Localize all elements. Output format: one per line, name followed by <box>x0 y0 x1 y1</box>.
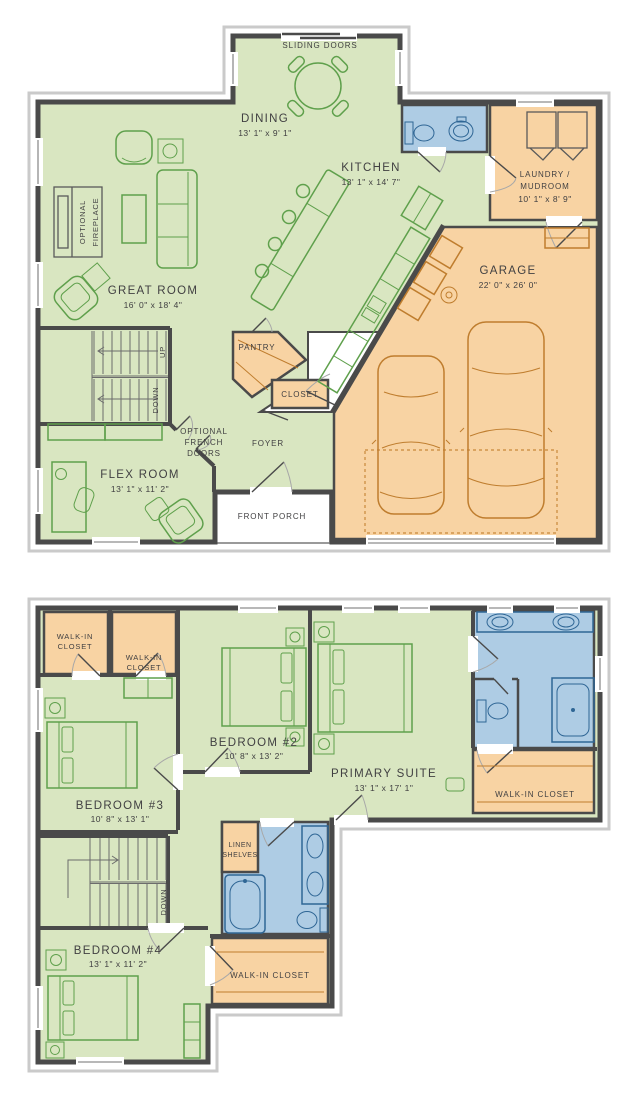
primary-bath-door-gap <box>468 636 478 672</box>
room-dims-kitchen: 13' 1" x 14' 7" <box>342 177 401 187</box>
primary-wic-door-gap <box>477 744 513 754</box>
wic-b-label-1: WALK-IN <box>126 653 163 662</box>
window <box>395 50 405 86</box>
wic-a-label-1: WALK-IN <box>57 632 94 641</box>
primary-wic-label: WALK-IN CLOSET <box>495 790 575 799</box>
hall-wic-label: WALK-IN CLO­SET <box>230 971 310 980</box>
hall-bath-door-gap <box>260 818 294 827</box>
room-dims-flex: 13' 1" x 11' 2" <box>111 484 169 494</box>
room-dims-bedroom3: 10' 8" x 13' 1" <box>91 814 150 824</box>
first-floor-plan: SLIDING DOORS DINING 13' 1" x 9' 1" KITC… <box>29 27 609 551</box>
room-label-bedroom4: BEDROOM #4 <box>74 945 162 957</box>
window <box>487 603 513 613</box>
floor-plan-canvas: SLIDING DOORS DINING 13' 1" x 9' 1" KITC… <box>0 0 639 1111</box>
room-label-primary: PRIMARY SUITE <box>331 768 437 780</box>
window <box>516 97 554 107</box>
up-label: UP <box>158 346 167 358</box>
laundry-garage-door-gap <box>546 216 582 226</box>
window <box>33 262 43 308</box>
primary-walk-in-closet <box>473 750 594 813</box>
room-label-bedroom2: BEDROOM #2 <box>210 737 298 749</box>
room-dims-dining: 13' 1" x 9' 1" <box>238 128 292 138</box>
linen-label-2: SHELVES <box>222 852 257 859</box>
window <box>33 688 43 732</box>
room-label-garage: GARAGE <box>479 265 536 277</box>
second-floor-plan: WALK-IN CLOSET WALK-IN CLOSET BEDROOM #2… <box>29 599 609 1071</box>
foyer-label: FOYER <box>252 439 284 448</box>
window <box>595 656 605 692</box>
garage-door-opening <box>366 535 556 546</box>
room-dims-primary: 13' 1" x 17' 1" <box>355 783 414 793</box>
wic-a-label-2: CLOSET <box>58 642 93 651</box>
room-dims-great-room: 16' 0" x 18' 4" <box>124 300 183 310</box>
room-dims-bedroom2: 10' 8" x 13' 2" <box>225 751 284 761</box>
window <box>33 138 43 186</box>
window <box>398 603 430 613</box>
window <box>238 603 278 613</box>
window <box>33 986 43 1030</box>
hall-wic-door-gap <box>205 946 215 986</box>
french-doors-label-1: OPTIONAL <box>180 427 228 436</box>
window <box>554 603 580 613</box>
room-dims-bedroom4: 13' 1" x 11' 2" <box>89 959 147 969</box>
down-label-floor2: DOWN <box>159 889 168 916</box>
sliding-doors-label: SLIDING DOORS <box>282 41 357 50</box>
room-label-flex: FLEX ROOM <box>100 469 179 481</box>
window <box>33 468 43 514</box>
room-label-kitchen: KITCHEN <box>341 162 401 174</box>
bedroom3-door-gap <box>173 754 183 790</box>
bedroom2-door-gap <box>205 767 240 777</box>
window <box>76 1057 124 1067</box>
floor-plan-page: SLIDING DOORS DINING 13' 1" x 9' 1" KITC… <box>0 0 639 1111</box>
window <box>228 52 238 86</box>
room-dims-garage: 22' 0" x 26' 0" <box>479 280 538 290</box>
room-label-bedroom3: BEDROOM #3 <box>76 800 164 812</box>
bedroom4-door-gap <box>148 923 184 933</box>
powder-door-gap <box>418 147 446 156</box>
room-label-laundry-2: MUDROOM <box>520 182 569 191</box>
down-label: DOWN <box>151 387 160 414</box>
laundry-door-gap <box>485 156 495 194</box>
window <box>92 537 140 547</box>
linen-label-1: LINEN <box>228 842 251 849</box>
fireplace-label-1: OPTIONAL <box>78 200 87 244</box>
closet-label: CLOSET <box>281 390 318 399</box>
front-porch-label: FRONT PORCH <box>238 512 306 521</box>
room-dims-laundry: 10' 1" x 8' 9" <box>518 194 572 204</box>
wic-b-label-2: CLOSET <box>127 663 162 672</box>
window <box>342 603 374 613</box>
room-label-laundry-1: LAUNDRY / <box>520 170 571 179</box>
fireplace-label-2: FIREPLACE <box>91 198 100 247</box>
french-doors-label-3: DOORS <box>187 449 221 458</box>
room-label-dining: DINING <box>241 113 289 125</box>
room-label-great-room: GREAT ROOM <box>108 285 199 297</box>
powder-room <box>402 105 487 152</box>
french-doors-label-2: FRENCH <box>185 438 224 447</box>
sliding-doors <box>281 31 357 41</box>
pantry-label: PANTRY <box>238 343 275 352</box>
